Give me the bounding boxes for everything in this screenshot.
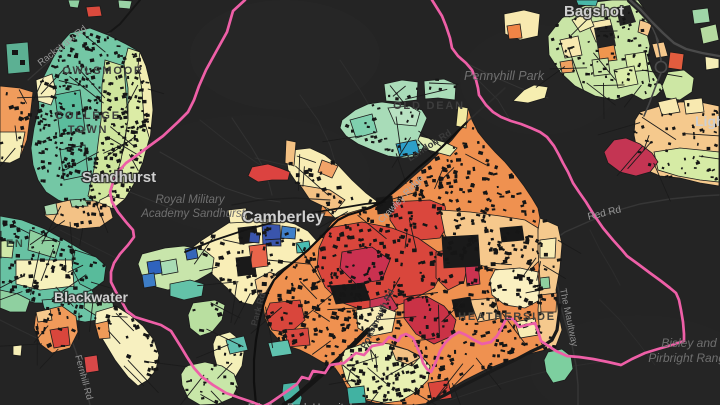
svg-text:EN: EN xyxy=(6,238,24,250)
svg-text:Blackwater: Blackwater xyxy=(54,289,128,305)
svg-text:Camberley: Camberley xyxy=(242,209,324,226)
svg-text:Pennyhill Park: Pennyhill Park xyxy=(464,69,545,83)
svg-text:OLD DEAN: OLD DEAN xyxy=(393,100,465,112)
svg-text:Bisley and: Bisley and xyxy=(661,336,717,350)
svg-text:Royal Military: Royal Military xyxy=(155,194,225,206)
svg-text:Lightwater: Lightwater xyxy=(695,113,720,129)
svg-text:COLLEGE: COLLEGE xyxy=(55,110,121,122)
svg-text:Bagshot: Bagshot xyxy=(564,3,624,20)
svg-text:Academy Sandhurst: Academy Sandhurst xyxy=(140,208,245,220)
svg-text:OWLSMOOR: OWLSMOOR xyxy=(62,65,144,77)
svg-text:TOWN: TOWN xyxy=(68,124,109,136)
svg-text:Pirbright Range: Pirbright Range xyxy=(648,351,720,365)
svg-text:HEATHERSIDE: HEATHERSIDE xyxy=(458,311,556,323)
svg-text:Sandhurst: Sandhurst xyxy=(82,169,156,186)
